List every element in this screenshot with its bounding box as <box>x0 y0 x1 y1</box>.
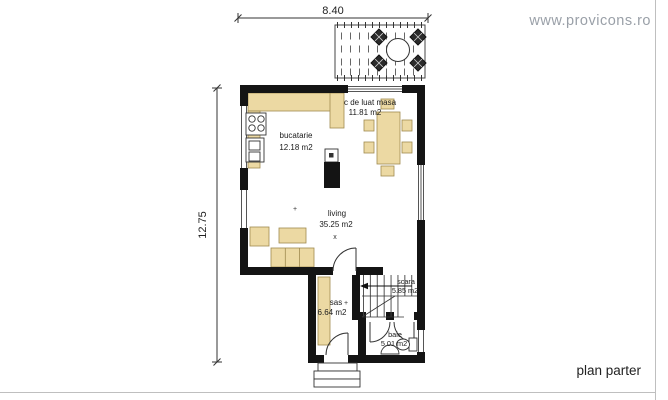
svg-text:35.25 m2: 35.25 m2 <box>319 220 353 229</box>
terrace <box>335 25 426 78</box>
dining-chair <box>364 142 374 153</box>
svg-text:c de luat masa: c de luat masa <box>344 98 397 107</box>
bath-window <box>419 330 424 352</box>
kitchen-counter-top <box>248 93 340 111</box>
living-window-left <box>242 190 247 228</box>
label-bath: baie 5.01 m2 <box>381 330 407 348</box>
svg-text:5.85 m2: 5.85 m2 <box>392 286 418 295</box>
floor-plan-page: www.provicons.ro plan parter 8.40 12.75 <box>0 0 668 400</box>
label-stairs: scara 5.85 m2 <box>392 277 418 295</box>
plan-title: plan parter <box>576 363 641 378</box>
coffee-table <box>279 228 306 243</box>
svg-text:living: living <box>328 209 346 218</box>
terrace-sliding-door <box>348 87 402 92</box>
chimney <box>324 149 340 188</box>
svg-text:sas: sas <box>330 298 342 307</box>
svg-text:scara: scara <box>397 277 416 286</box>
living-window-right <box>419 165 424 220</box>
kitchen-tall-cabinet <box>330 93 344 128</box>
floor-plan-drawing: www.provicons.ro plan parter 8.40 12.75 <box>0 0 668 400</box>
svg-text:bucatarie: bucatarie <box>280 131 313 140</box>
sofa <box>271 248 314 267</box>
dining-chair <box>364 120 374 131</box>
dimension-top-value: 8.40 <box>322 5 343 17</box>
website-link[interactable]: www.provicons.ro <box>528 13 651 29</box>
armchair <box>250 227 269 246</box>
svg-text:5.01 m2: 5.01 m2 <box>381 339 407 348</box>
entrance-steps <box>314 363 360 387</box>
door-living-hall <box>333 248 356 271</box>
dining-chair <box>402 120 412 131</box>
dimension-left <box>212 85 222 366</box>
svg-text:6.64 m2: 6.64 m2 <box>318 308 347 317</box>
dining-chair <box>402 142 412 153</box>
level-marker-plus: + <box>293 206 297 213</box>
survey-marker-cross: x <box>333 234 337 241</box>
dining-table <box>377 112 400 164</box>
terrace-table <box>387 39 410 62</box>
dimension-left-value: 12.75 <box>197 211 209 239</box>
hall-level-marker: + <box>344 300 348 307</box>
dining-chair <box>381 166 394 176</box>
stair-direction-arrow <box>360 283 368 289</box>
label-kitchen: bucatarie 12.18 m2 <box>279 131 313 152</box>
svg-text:12.18 m2: 12.18 m2 <box>279 143 313 152</box>
svg-text:11.81 m2: 11.81 m2 <box>349 108 382 117</box>
svg-text:baie: baie <box>388 330 402 339</box>
